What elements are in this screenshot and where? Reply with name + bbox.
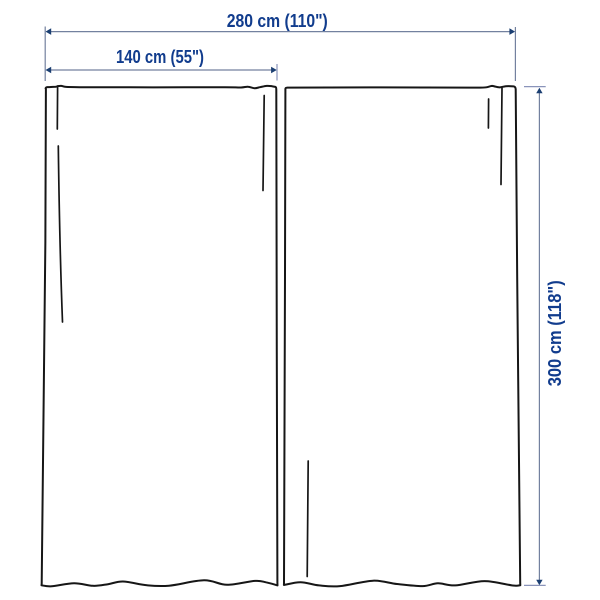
svg-text:140 cm (55"): 140 cm (55") <box>116 46 204 67</box>
svg-text:280 cm (110"): 280 cm (110") <box>227 10 328 31</box>
svg-text:300 cm (118"): 300 cm (118") <box>544 280 565 386</box>
